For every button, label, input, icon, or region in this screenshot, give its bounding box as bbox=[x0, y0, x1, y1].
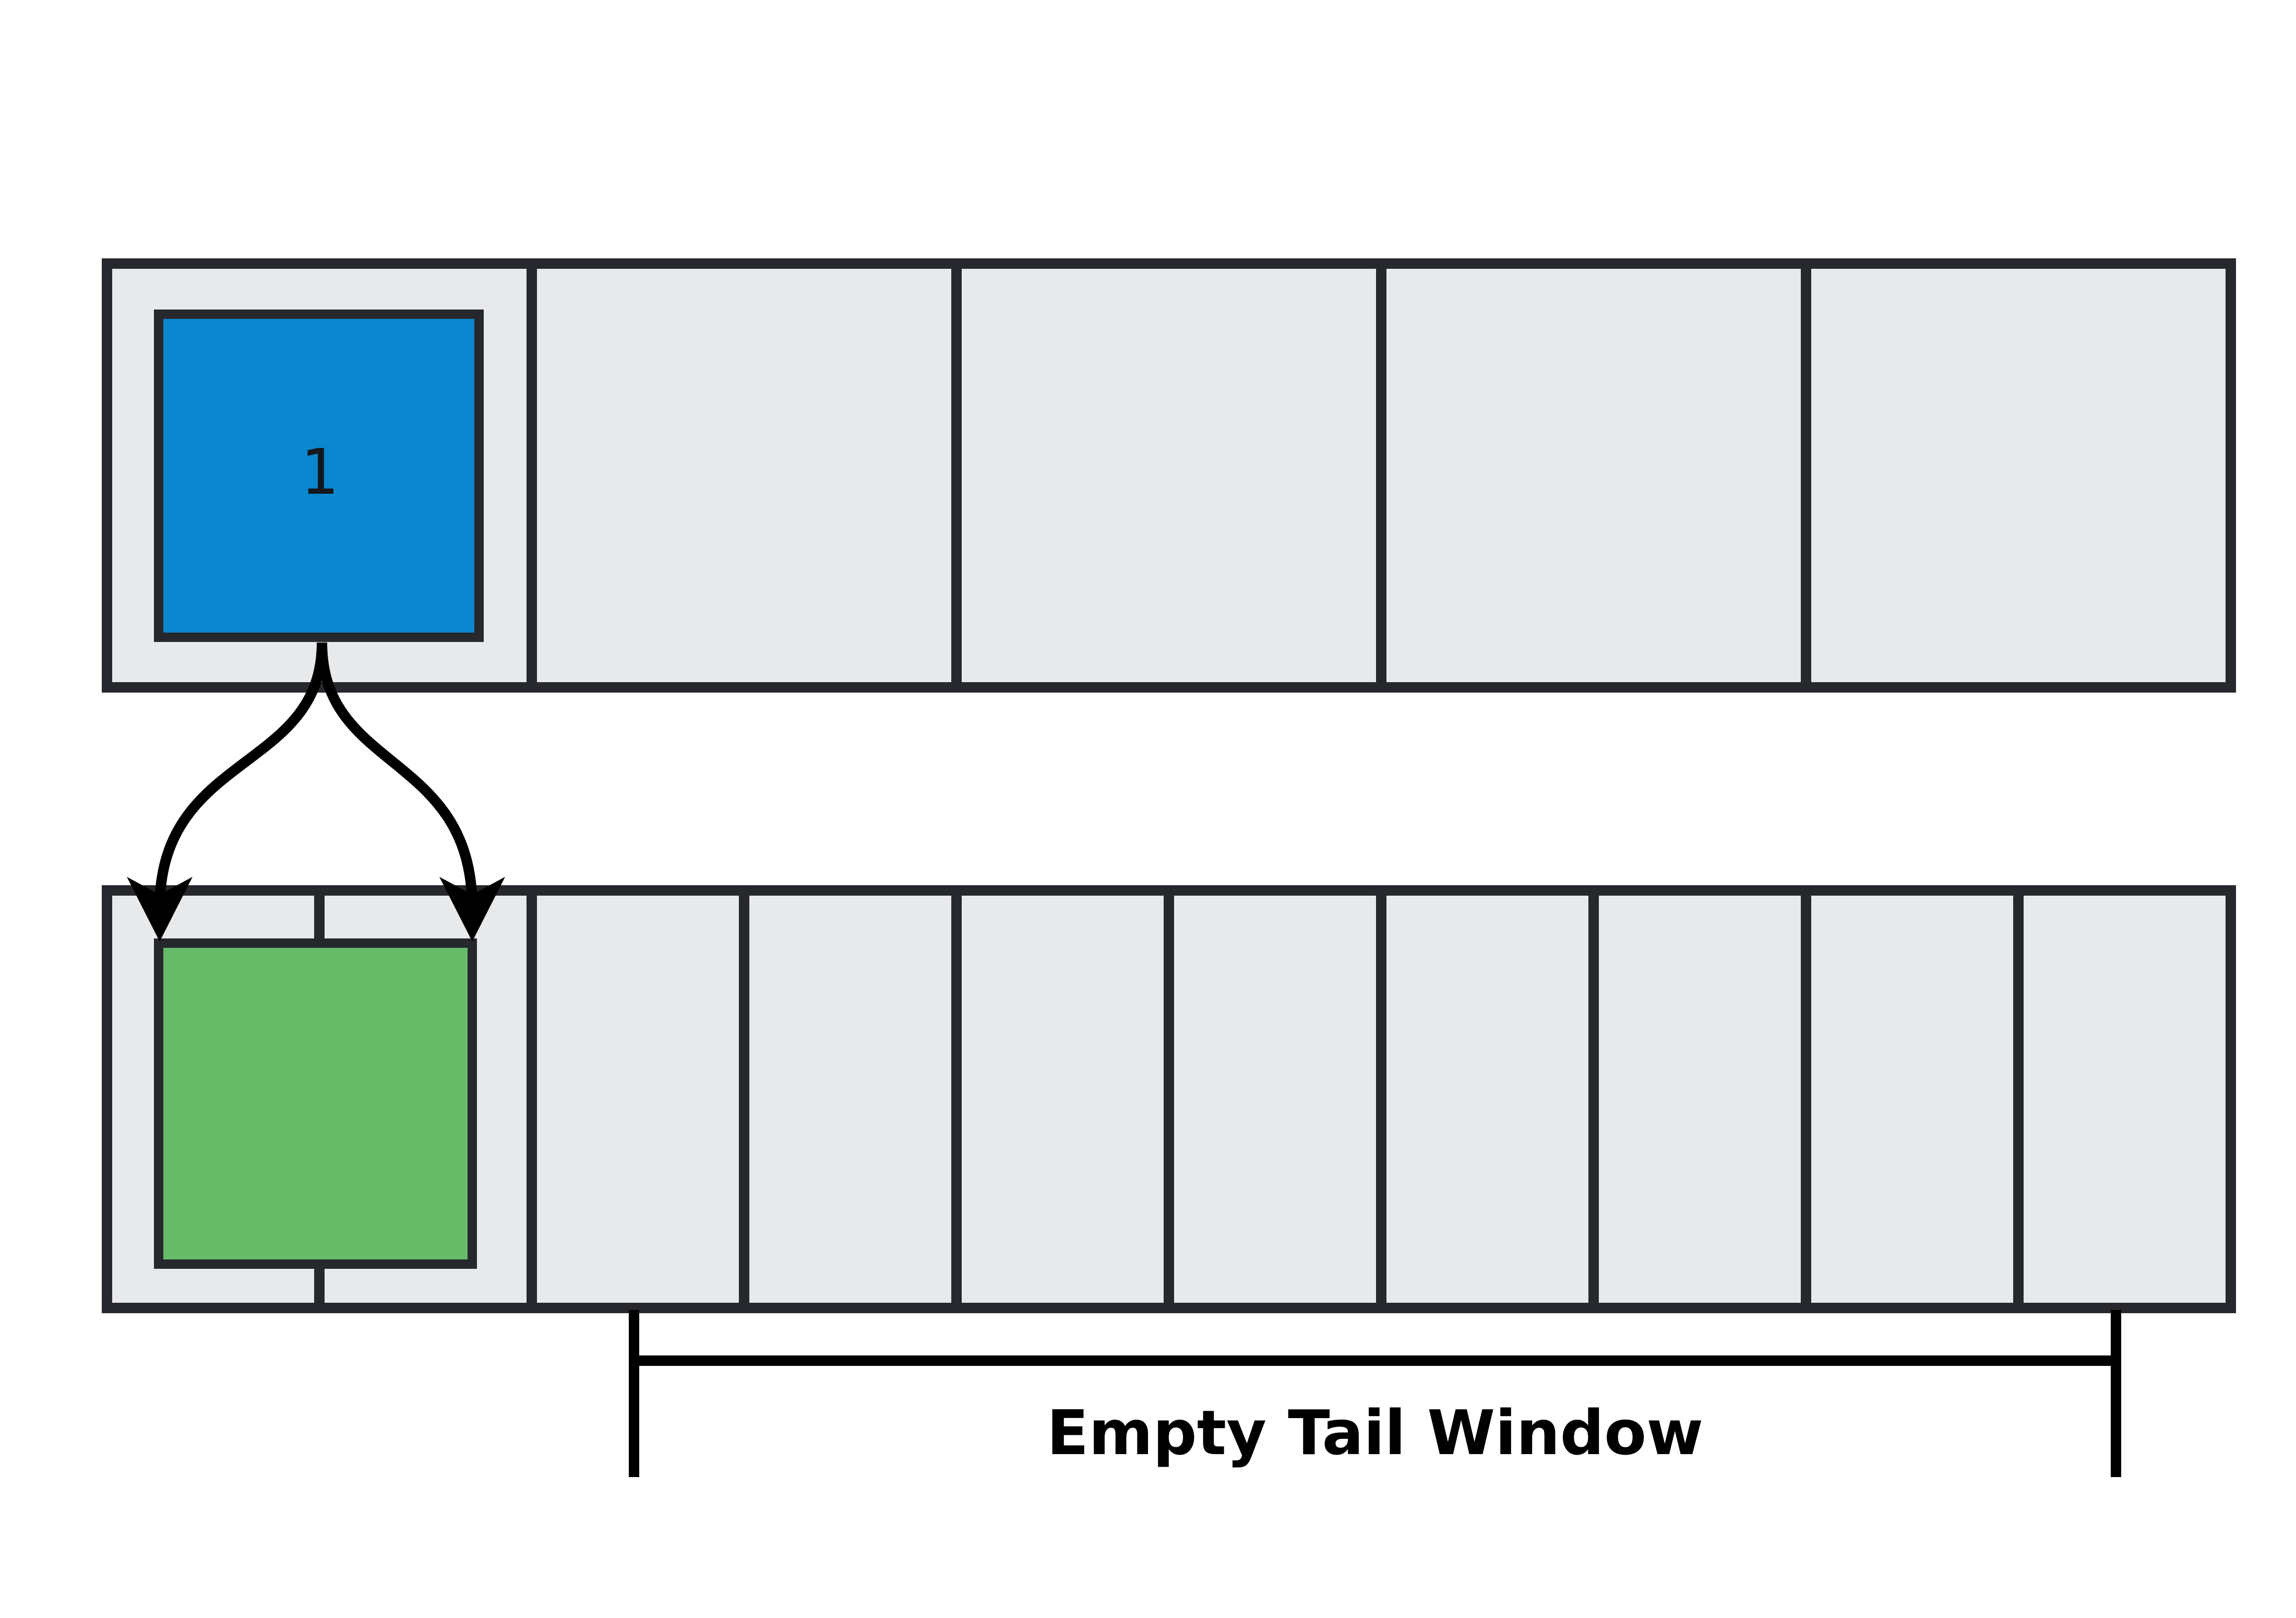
top-array-cell-2 bbox=[537, 269, 951, 682]
bottom-array-cell-8 bbox=[1599, 896, 1801, 1303]
annotation-overlay bbox=[0, 0, 2296, 1618]
top-array-cell-4 bbox=[1386, 269, 1801, 682]
bottom-array-cell-10 bbox=[2024, 896, 2226, 1303]
bottom-array-cell-4 bbox=[749, 896, 951, 1303]
top-row-block-label: 1 bbox=[300, 442, 338, 504]
bottom-array-cell-6 bbox=[1174, 896, 1376, 1303]
bottom-array-cell-5 bbox=[962, 896, 1164, 1303]
top-array-cell-3 bbox=[962, 269, 1376, 682]
bottom-row-block bbox=[154, 938, 477, 1269]
top-row-block: 1 bbox=[154, 310, 484, 642]
diagram-canvas: 1 Empty Tail Window bbox=[0, 0, 2296, 1618]
bracket-label: Empty Tail Window bbox=[644, 1397, 2106, 1469]
bottom-array-cell-7 bbox=[1386, 896, 1588, 1303]
bottom-array-cell-9 bbox=[1811, 896, 2013, 1303]
top-array-cell-5 bbox=[1811, 269, 2226, 682]
bottom-array-cell-3 bbox=[537, 896, 739, 1303]
